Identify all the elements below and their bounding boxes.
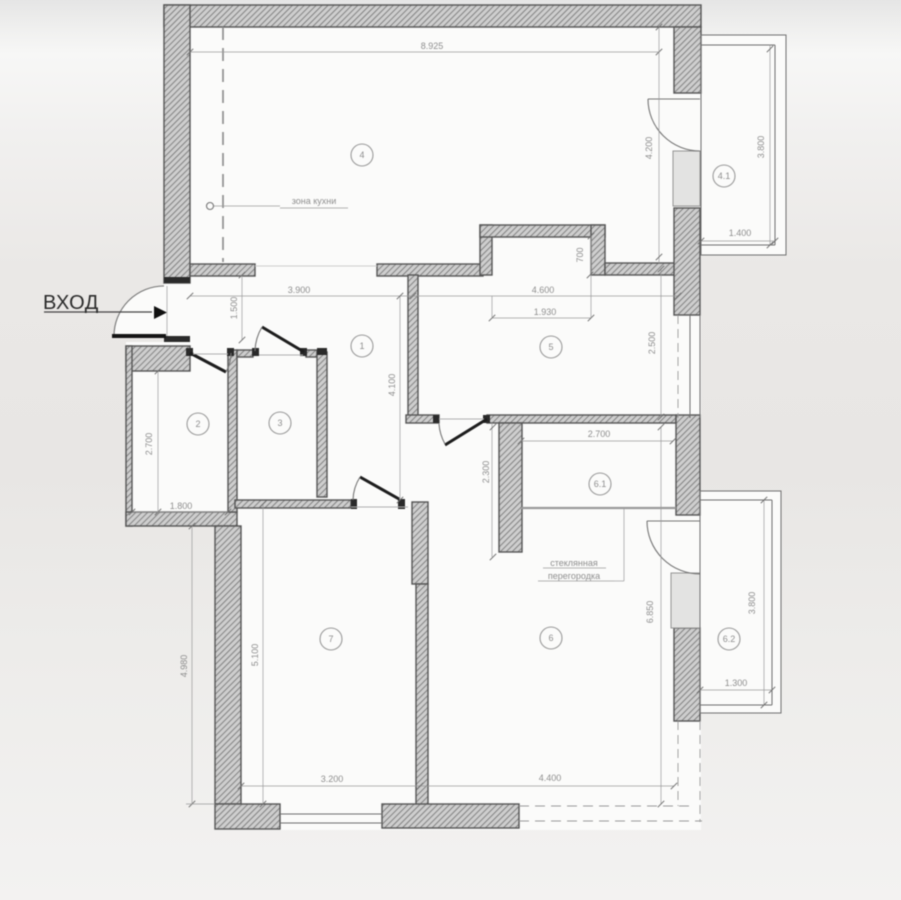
- svg-text:3.800: 3.800: [747, 592, 757, 615]
- svg-text:2.700: 2.700: [144, 433, 154, 456]
- svg-text:2.300: 2.300: [481, 461, 491, 484]
- svg-text:700: 700: [575, 247, 585, 262]
- svg-text:3: 3: [277, 418, 282, 428]
- svg-text:4.400: 4.400: [539, 773, 562, 783]
- svg-text:3.900: 3.900: [288, 285, 311, 295]
- svg-text:1.300: 1.300: [725, 678, 748, 688]
- svg-text:4.980: 4.980: [179, 655, 189, 678]
- svg-text:1.500: 1.500: [229, 297, 239, 320]
- svg-text:4.200: 4.200: [644, 137, 654, 160]
- svg-text:8.925: 8.925: [421, 41, 444, 51]
- svg-text:ВХОД: ВХОД: [43, 292, 99, 314]
- svg-text:2.500: 2.500: [647, 332, 657, 355]
- svg-text:1.400: 1.400: [729, 228, 752, 238]
- svg-text:6: 6: [548, 633, 553, 643]
- svg-text:6.2: 6.2: [723, 634, 736, 644]
- svg-text:4: 4: [359, 150, 364, 160]
- svg-text:1.930: 1.930: [534, 307, 557, 317]
- svg-text:1: 1: [359, 341, 364, 351]
- svg-text:7: 7: [328, 634, 333, 644]
- svg-text:5.100: 5.100: [250, 644, 260, 667]
- svg-text:1.800: 1.800: [170, 501, 193, 511]
- svg-text:зона кухни: зона кухни: [292, 196, 337, 206]
- svg-text:перегородка: перегородка: [548, 571, 600, 581]
- svg-text:4.1: 4.1: [718, 171, 731, 181]
- svg-text:4.600: 4.600: [532, 285, 555, 295]
- svg-text:2.700: 2.700: [588, 429, 611, 439]
- svg-text:3.800: 3.800: [756, 136, 766, 159]
- svg-text:5: 5: [548, 342, 553, 352]
- svg-text:6.850: 6.850: [645, 601, 655, 624]
- svg-text:6.1: 6.1: [594, 479, 607, 489]
- svg-text:3.200: 3.200: [321, 774, 344, 784]
- svg-text:2: 2: [195, 419, 200, 429]
- svg-text:стеклянная: стеклянная: [550, 558, 598, 568]
- svg-text:4.100: 4.100: [387, 374, 397, 397]
